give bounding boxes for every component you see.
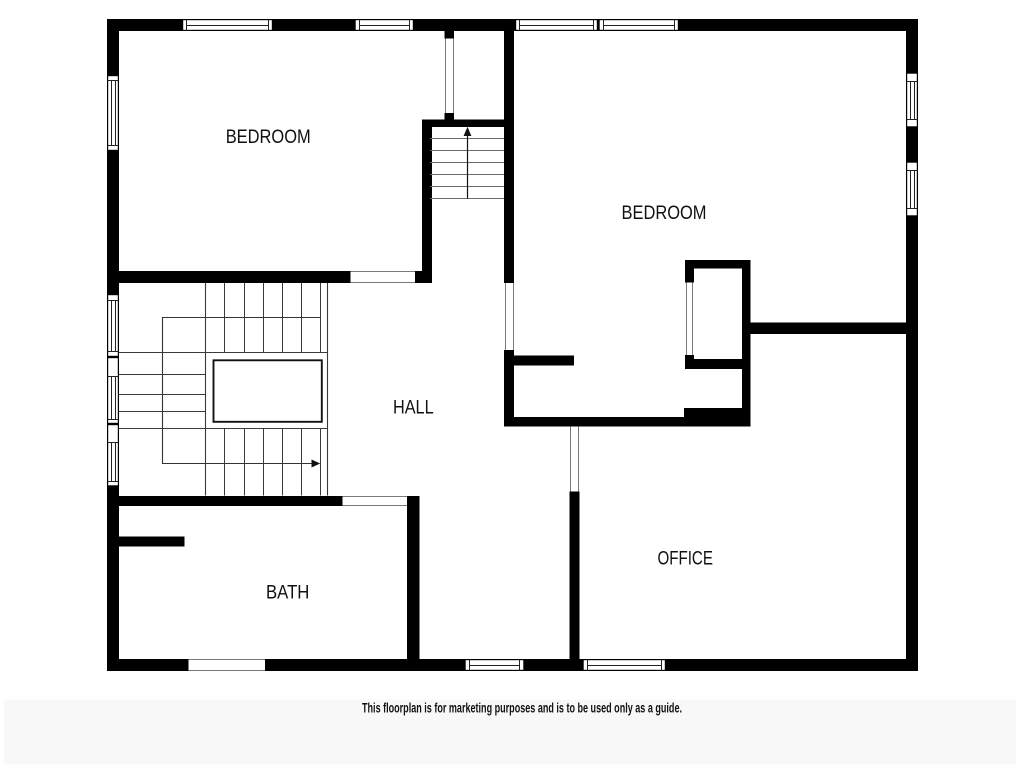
- svg-text:BATH: BATH: [266, 582, 309, 603]
- svg-text:BEDROOM: BEDROOM: [226, 126, 311, 147]
- svg-text:HALL: HALL: [393, 396, 434, 417]
- svg-text:This floorplan is for marketin: This floorplan is for marketing purposes…: [362, 702, 682, 716]
- svg-text:BEDROOM: BEDROOM: [622, 202, 707, 223]
- svg-text:OFFICE: OFFICE: [657, 547, 713, 569]
